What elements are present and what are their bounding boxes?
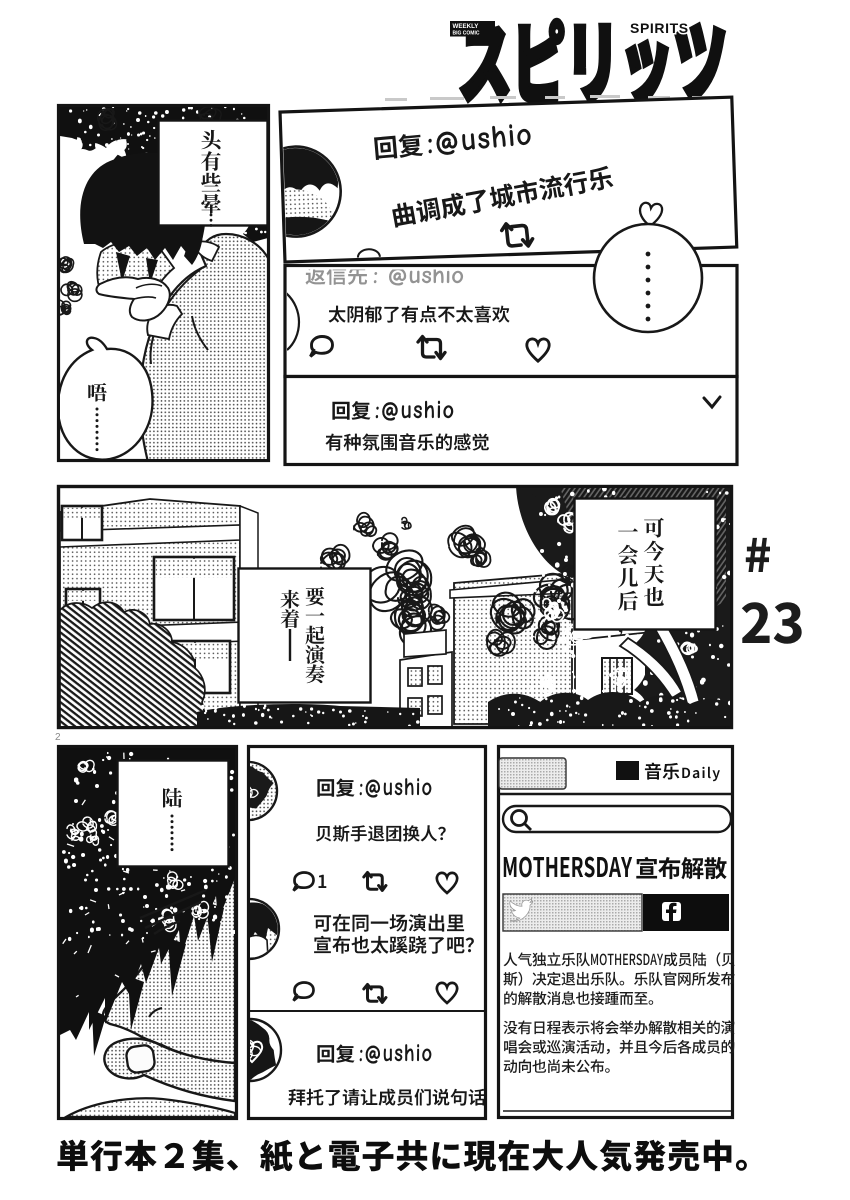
svg-text:BIG COMIC: BIG COMIC <box>453 31 480 37</box>
svg-text:2: 2 <box>55 732 61 743</box>
svg-text:SPIRITS: SPIRITS <box>630 20 689 36</box>
svg-text:WEEKLY: WEEKLY <box>453 23 480 30</box>
